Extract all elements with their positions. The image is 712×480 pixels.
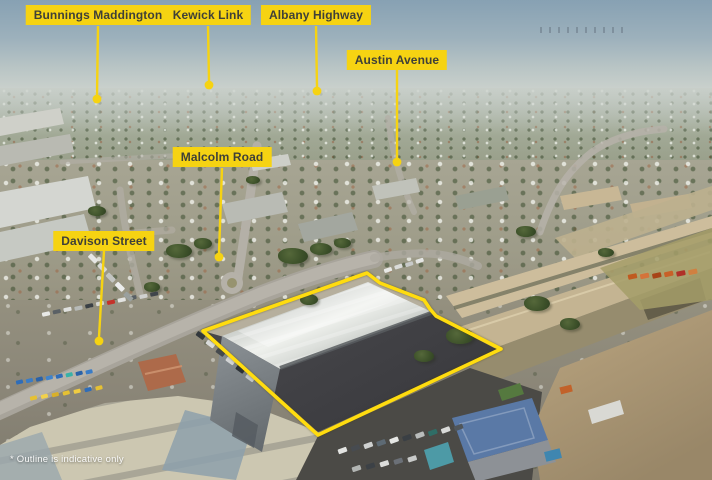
outline-disclaimer: * Outline is indicative only	[10, 454, 124, 465]
property-outline	[203, 273, 501, 435]
pointer-lines	[97, 26, 397, 337]
label-austin-avenue: Austin Avenue	[347, 50, 447, 70]
label-bunnings-maddington: Bunnings Maddington	[26, 5, 171, 25]
pointer-dots	[93, 81, 402, 346]
label-davison-street: Davison Street	[53, 231, 154, 251]
label-kewick-link: Kewick Link	[165, 5, 251, 25]
label-malcolm-road: Malcolm Road	[173, 147, 272, 167]
label-albany-highway: Albany Highway	[261, 5, 371, 25]
aerial-photo: Bunnings Maddington Kewick Link Albany H…	[0, 0, 712, 480]
